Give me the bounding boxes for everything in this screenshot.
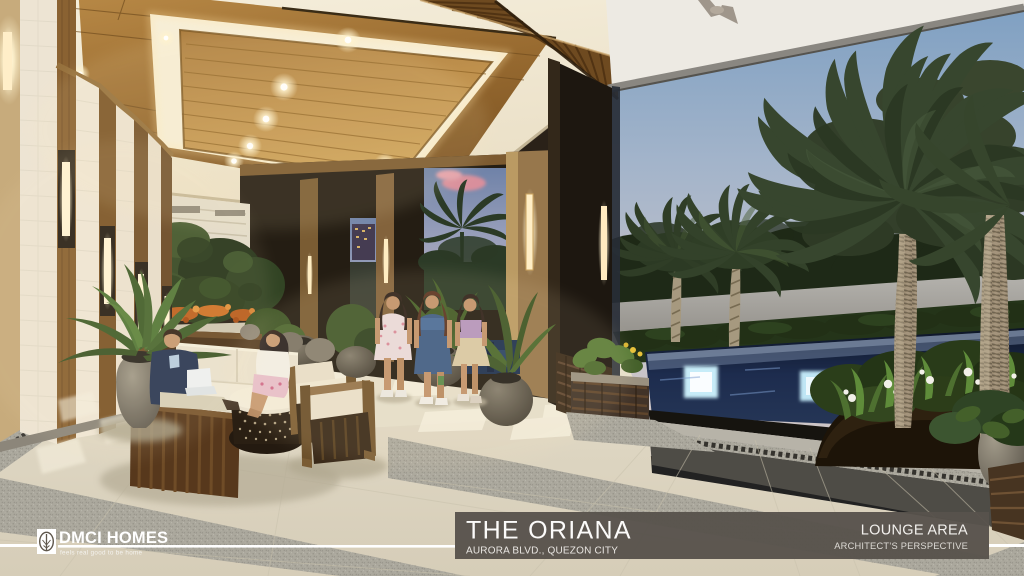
svg-text:DMCI HOMES: DMCI HOMES	[59, 529, 168, 547]
svg-text:LOUNGE AREA: LOUNGE AREA	[861, 523, 968, 539]
svg-text:feels real good to be home: feels real good to be home	[60, 550, 143, 557]
svg-text:THE ORIANA: THE ORIANA	[466, 517, 632, 545]
svg-text:ARCHITECT’S PERSPECTIVE: ARCHITECT’S PERSPECTIVE	[834, 541, 968, 551]
svg-text:AURORA BLVD., QUEZON CITY: AURORA BLVD., QUEZON CITY	[466, 546, 618, 557]
